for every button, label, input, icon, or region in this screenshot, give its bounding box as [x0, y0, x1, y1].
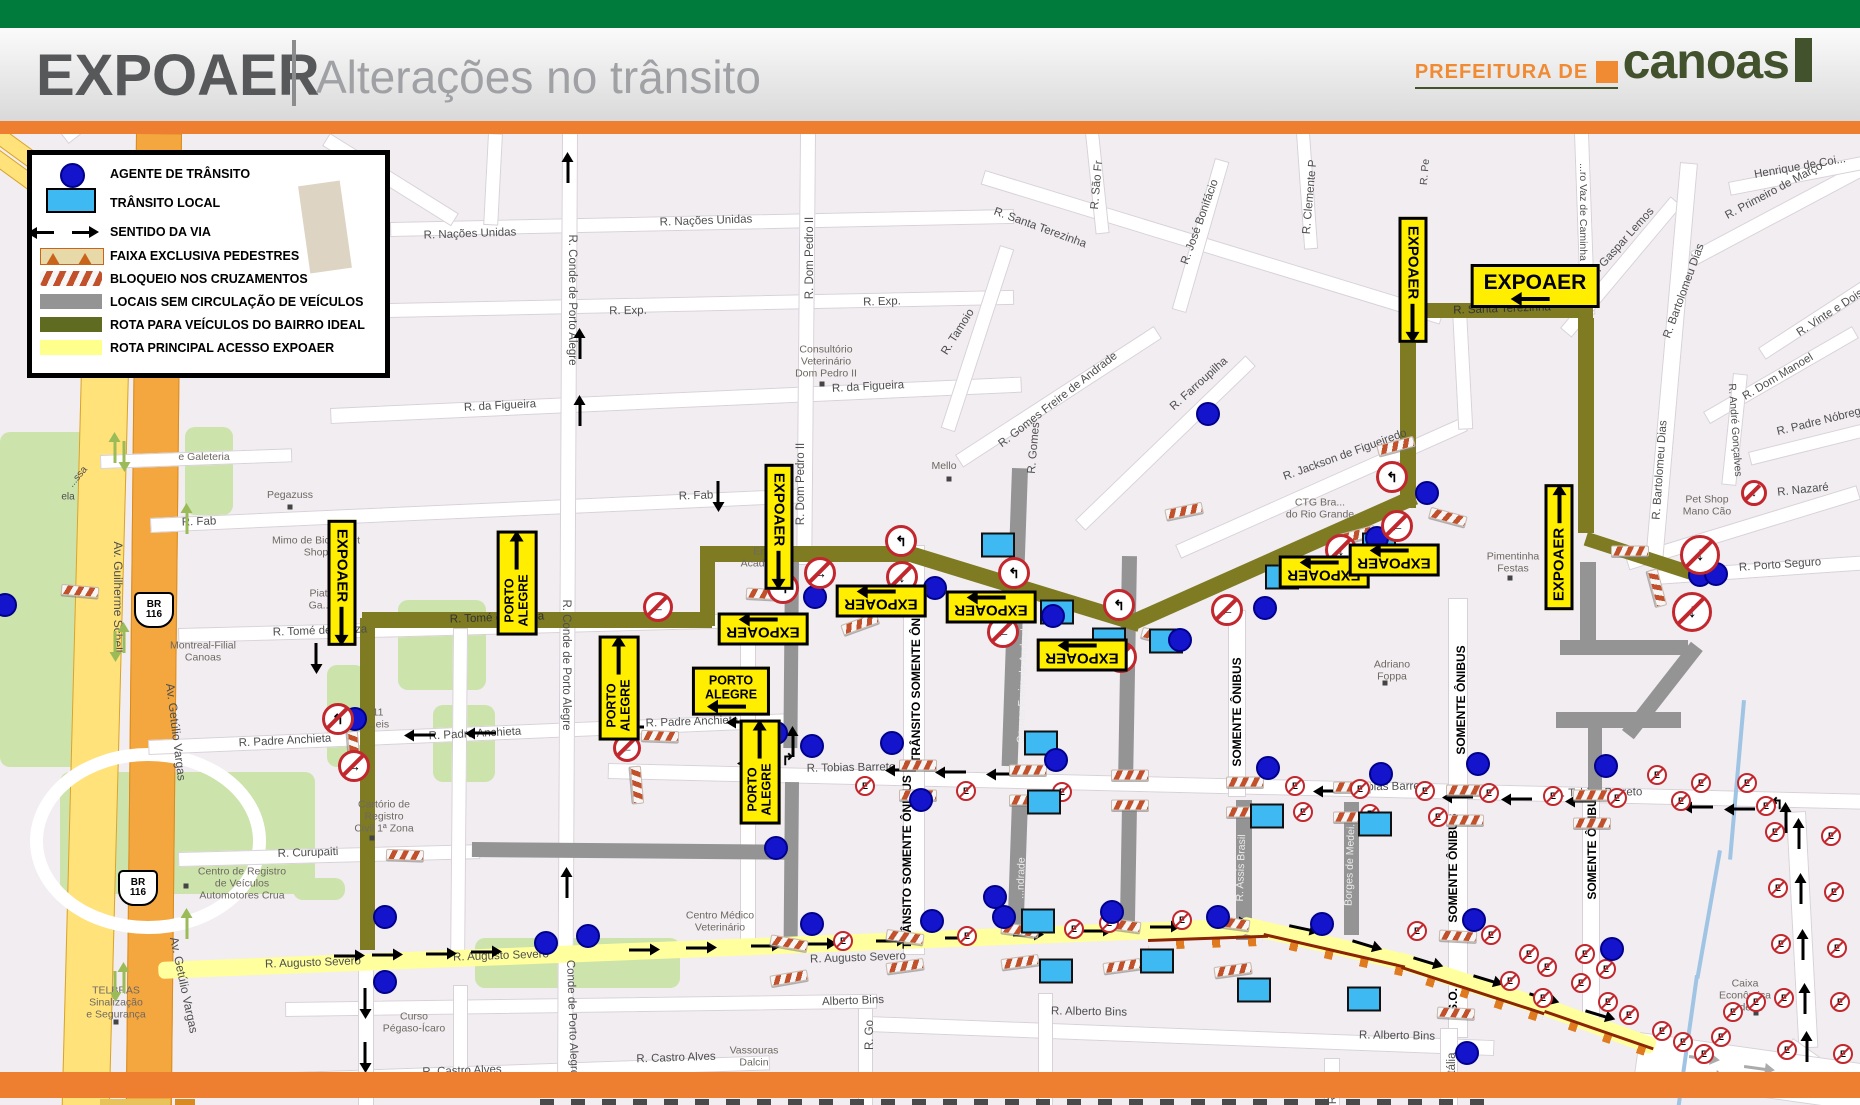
prohibition-slash [836, 934, 850, 948]
sign-arrow [866, 590, 896, 594]
prohibition-slash [1749, 995, 1763, 1009]
olive-route-icon [38, 314, 104, 336]
prohibition-slash [1288, 779, 1302, 793]
prohibition-slash [1676, 596, 1706, 626]
turn-restriction-sign: ↓ [1680, 535, 1720, 575]
no-parking-sign: E [1415, 781, 1435, 801]
traffic-agent-dot [909, 788, 933, 812]
legend-row-locais: LOCAIS SEM CIRCULAÇÃO DE VEÍCULOS [32, 291, 385, 315]
traffic-agent-dot [1253, 596, 1277, 620]
traffic-agent-dot [1041, 604, 1065, 628]
street [1452, 309, 1473, 430]
crossing-blockade [1009, 765, 1047, 776]
local-traffic-marker [1039, 959, 1073, 984]
no-parking-sign: E [1533, 988, 1553, 1008]
traffic-agent-dot [1600, 937, 1624, 961]
poi-marker [820, 382, 825, 387]
local-traffic-marker [1358, 812, 1392, 837]
expoaer-sign-text: EXPOAER [334, 529, 351, 602]
prohibition-slash [1676, 1035, 1690, 1049]
direction-arrow [315, 643, 318, 665]
no-parking-sign: E [1607, 788, 1627, 808]
expoaer-sign: EXPOAER [1399, 217, 1428, 343]
traffic-agent-dot [1462, 908, 1486, 932]
turn-restriction-sign: ↰ [322, 703, 354, 735]
direction-arrow [474, 732, 496, 735]
legend-label: ROTA PRINCIPAL ACESSO EXPOAER [110, 341, 334, 355]
prohibition-slash [1578, 947, 1592, 961]
sign-arrow [617, 644, 621, 674]
traffic-agent-dot [1455, 1041, 1479, 1065]
no-parking-sign: E [1756, 796, 1776, 816]
expoaer-sign-text: EXPOAER [954, 602, 1027, 619]
crossing-blockade [1111, 800, 1149, 811]
prohibition-slash [1759, 799, 1773, 813]
porto-alegre-sign: PORTO ALEGRE [692, 667, 770, 716]
no-parking-sign: E [1827, 938, 1847, 958]
traffic-agent-dot [1466, 752, 1490, 776]
prohibition-slash [1522, 947, 1536, 961]
no-parking-sign: E [1821, 826, 1841, 846]
page-subtitle: Alterações no trânsito [316, 50, 761, 104]
no-parking-sign: E [1619, 1005, 1639, 1025]
crossing-blockade [1000, 954, 1039, 970]
logo-green-square [1795, 38, 1812, 82]
street-label: R. Conde de Porto Alegre [560, 599, 572, 730]
top-green-bar [0, 0, 1860, 28]
traffic-agent-dot [983, 885, 1007, 909]
sign-arrow [748, 618, 778, 622]
no-parking-sign: E [1519, 944, 1539, 964]
turn-restriction-sign: ← [1211, 594, 1243, 626]
crossing-blockade [769, 969, 808, 986]
porto-alegre-sign: PORTO ALEGRE [740, 719, 781, 824]
no-parking-sign: E [1647, 765, 1667, 785]
prohibition-slash [1410, 924, 1424, 938]
turn-restriction-sign: ↰ [885, 525, 917, 557]
direction-arrow [1806, 1040, 1809, 1062]
park-area [293, 878, 345, 900]
blockade-icon [38, 268, 104, 290]
prohibition-slash [1353, 782, 1367, 796]
turn-restriction-sign: ↓ [1741, 480, 1767, 506]
traffic-agent-dot [1310, 912, 1334, 936]
logo-text-bottom: canoas [1623, 40, 1789, 83]
traffic-agent-dot [1044, 748, 1068, 772]
footer-orange-bar [0, 1072, 1860, 1098]
poi-marker [114, 1020, 119, 1025]
prohibition-slash [646, 596, 668, 618]
orange-divider-bar [0, 121, 1860, 134]
direction-arrow [579, 337, 582, 359]
direction-arrow [579, 404, 582, 426]
prohibition-slash [1697, 1047, 1711, 1061]
traffic-agent-dot [880, 731, 904, 755]
no-parking-sign: E [1652, 1021, 1672, 1041]
expoaer-sign: EXPOAER [717, 613, 808, 646]
gray-route-icon [38, 291, 104, 313]
sign-arrow [758, 728, 762, 758]
prohibition-slash [1674, 794, 1688, 808]
legend-row-rota-expoaer: ROTA PRINCIPAL ACESSO EXPOAER [32, 337, 385, 361]
no-parking-sign: E [956, 781, 976, 801]
park-area [185, 427, 233, 515]
street [330, 377, 1022, 424]
sign-arrow [716, 704, 746, 708]
direction-arrow [1082, 930, 1104, 933]
direction-arrow [944, 771, 966, 774]
prohibition-slash [1774, 937, 1788, 951]
roundabout-road [30, 748, 266, 934]
no-parking-sign: E [1694, 1044, 1714, 1064]
local-traffic-marker [1027, 790, 1061, 815]
expoaer-sign: EXPOAER [1036, 639, 1127, 672]
traffic-agent-dot [534, 931, 558, 955]
sign-arrow [1379, 549, 1409, 553]
no-parking-sign: E [1575, 944, 1595, 964]
expoaer-sign: EXPOAER [945, 591, 1036, 624]
traffic-agent-dot [1369, 762, 1393, 786]
sign-arrow [1557, 493, 1561, 523]
no-parking-sign: E [1571, 973, 1591, 993]
prohibition-slash [1743, 484, 1762, 503]
sign-arrow [1411, 304, 1415, 334]
prohibition-slash [1777, 991, 1791, 1005]
direction-arrow [114, 971, 117, 993]
prohibition-slash [1827, 885, 1841, 899]
sign-arrow [1309, 561, 1339, 565]
expoaer-sign: EXPOAER [1545, 484, 1574, 610]
sign-arrow [515, 539, 519, 569]
no-parking-sign: E [1768, 878, 1788, 898]
crossing-blockade [1428, 507, 1468, 527]
street-label: ...ro Vaz de Caminha [1577, 163, 1589, 261]
prohibition-slash [1418, 784, 1432, 798]
turn-restriction-sign: ↓ [1672, 592, 1712, 632]
prohibition-slash [1740, 776, 1754, 790]
prohibition-slash [341, 754, 364, 777]
bottom-map-fragment [175, 1099, 195, 1105]
street-label: ela [61, 492, 74, 503]
no-parking-sign: E [1833, 1044, 1853, 1064]
prohibition-slash [1830, 941, 1844, 955]
traffic-agent-dot [1168, 628, 1192, 652]
direction-arrow [372, 954, 394, 957]
prohibition-slash [1694, 776, 1708, 790]
direction-arrow [364, 1042, 367, 1064]
local-traffic-marker [1021, 909, 1055, 934]
turn-restriction-sign: ↰ [1103, 589, 1135, 621]
local-traffic-icon [38, 188, 104, 210]
no-parking-sign: E [1824, 882, 1844, 902]
poi-label: Cartório de Registro Civil 1ª Zona [354, 799, 413, 834]
expoaer-sign: EXPOAER [328, 520, 357, 646]
no-parking-sign: E [1537, 957, 1557, 977]
direction-arrow [413, 734, 435, 737]
poi-label: Pegazuss [267, 490, 313, 502]
porto-alegre-sign-text: PORTO ALEGRE [746, 763, 775, 815]
direction-arrow [566, 876, 569, 898]
logo-line2: canoas [1623, 38, 1812, 82]
direction-arrow [1800, 882, 1803, 904]
prohibition-slash [807, 561, 830, 584]
direction-arrow [114, 631, 117, 653]
crossing-blockade [1164, 502, 1203, 521]
poi-label: Adriano Foppa [1374, 659, 1410, 683]
poi-label: Montreal-Filial Canoas [170, 640, 236, 664]
expoaer-sign-text: EXPOAER [1551, 528, 1568, 601]
traffic-agent-dot [1100, 900, 1124, 924]
no-parking-sign: E [1064, 919, 1084, 939]
bottom-cropped-text-strip [540, 1099, 1500, 1105]
street-label: SOMENTE ÔNIBUS [1446, 813, 1460, 922]
sign-arrow [1520, 297, 1550, 301]
poi-label: Mello [931, 461, 956, 473]
crossing-blockade [1226, 777, 1264, 788]
prohibition-slash [1503, 974, 1517, 988]
badge-line2: 116 [146, 610, 162, 620]
badge-line2: 116 [130, 888, 146, 898]
expoaer-sign-text: EXPOAER [1484, 271, 1587, 295]
no-parking-sign: E [1691, 773, 1711, 793]
poi-label: Pet Shop Mano Cão [1683, 494, 1731, 518]
street [450, 628, 468, 955]
direction-arrow [186, 917, 189, 939]
direction-arrow [806, 943, 828, 946]
poi-label: Centro de Registro de Veículos Automotor… [198, 866, 286, 901]
poi-label: Pimentinha Festas [1487, 551, 1540, 575]
bottom-map-fragment [100, 1099, 170, 1105]
direction-arrow [1802, 938, 1805, 960]
prohibition-slash [1431, 810, 1445, 824]
agent-dot-icon [38, 163, 104, 185]
traffic-agent-dot [576, 924, 600, 948]
street [483, 133, 503, 226]
turn-restriction-sign: → [338, 750, 370, 782]
no-parking-sign: E [1407, 921, 1427, 941]
no-parking-sign: E [1771, 934, 1791, 954]
no-parking-sign: E [1481, 925, 1501, 945]
blocked-street [1556, 712, 1681, 728]
street-label: R. Go [864, 1020, 876, 1050]
traffic-agent-dot [373, 905, 397, 929]
crossing-blockade [1446, 815, 1484, 826]
prohibition-slash [1610, 791, 1624, 805]
poi-marker [947, 477, 952, 482]
direction-arrow [123, 631, 126, 653]
poi-marker [288, 505, 293, 510]
expoaer-sign-text: EXPOAER [844, 596, 917, 613]
legend-label: AGENTE DE TRÂNSITO [110, 167, 250, 181]
traffic-agent-dot [920, 909, 944, 933]
no-parking-sign: E [1500, 971, 1520, 991]
no-parking-sign: E [1711, 1027, 1731, 1047]
header: EXPOAER Alterações no trânsito PREFEITUR… [0, 28, 1860, 121]
traffic-agent-dot [1256, 756, 1280, 780]
porto-alegre-sign: PORTO ALEGRE [599, 635, 640, 740]
street-label: R. Alberto Bins [1359, 1029, 1435, 1042]
blocked-street [472, 842, 787, 860]
prohibition-slash [1768, 825, 1782, 839]
crossing-blockade [1573, 790, 1611, 801]
local-traffic-marker [1250, 804, 1284, 829]
expoaer-sign-text: EXPOAER [1357, 555, 1430, 572]
prohibition-slash [959, 784, 973, 798]
no-parking-sign: E [1350, 779, 1370, 799]
bairro-ideal-route [700, 546, 910, 562]
direction-arrow [567, 161, 570, 183]
prohibition-slash [1601, 995, 1615, 1009]
no-parking-sign: E [1293, 802, 1313, 822]
poi-label: Centro Médico Veterinário [686, 910, 754, 934]
prohibition-slash [1536, 991, 1550, 1005]
no-parking-sign: E [1774, 988, 1794, 1008]
blocked-street [1560, 640, 1688, 655]
direction-arrow [364, 988, 367, 1010]
prohibition-slash [1622, 1008, 1636, 1022]
direction-arrow [1804, 992, 1807, 1014]
stream [1695, 850, 1722, 979]
porto-alegre-sign-text: PORTO ALEGRE [705, 674, 757, 703]
expoaer-sign-text: EXPOAER [726, 624, 799, 641]
prohibition-slash [1067, 922, 1081, 936]
br116-badge: BR116 [118, 870, 158, 906]
street-label: R. Exp. [863, 295, 901, 308]
prohibition-slash [1650, 768, 1664, 782]
street-label: SOMENTE ÔNIBUS [1454, 645, 1468, 754]
no-parking-sign: E [833, 931, 853, 951]
direction-arrow [123, 441, 126, 463]
local-traffic-marker [1237, 978, 1271, 1003]
poi-label: 11 ...eis [367, 707, 389, 731]
direction-arrow [1798, 827, 1801, 849]
street-label: R. Gomes Freire de Andrade [996, 350, 1119, 450]
direction-arrow [1451, 796, 1473, 799]
legend-row-bloqueio: BLOQUEIO NOS CRUZAMENTOS [32, 268, 385, 292]
legend-label: FAIXA EXCLUSIVA PEDESTRES [110, 249, 299, 263]
street-label: R. Fab [679, 489, 714, 502]
prohibition-slash [615, 738, 635, 758]
br116-badge: BR116 [134, 592, 174, 628]
street-label: SOMENTE ÔNIBUS [1585, 790, 1599, 899]
prohibition-slash [325, 707, 348, 730]
street-label: R. Pe [1418, 158, 1432, 185]
logo-text-top: PREFEITURA DE [1415, 61, 1588, 84]
no-parking-sign: E [855, 776, 875, 796]
prohibition-slash [1574, 976, 1588, 990]
direction-arrow [1785, 811, 1788, 833]
street [388, 290, 1014, 318]
street-label: R. Alberto Bins [1051, 1005, 1127, 1018]
local-traffic-marker [1140, 949, 1174, 974]
traffic-agent-dot [373, 970, 397, 994]
prohibition-slash [960, 929, 974, 943]
poi-label: Consultório Veterinário Dom Pedro II [795, 344, 857, 379]
legend-label: BLOQUEIO NOS CRUZAMENTOS [110, 272, 308, 286]
no-parking-sign: E [1765, 822, 1785, 842]
direction-arrow [1691, 806, 1713, 809]
traffic-agent-dot [800, 734, 824, 758]
direction-arrow [426, 953, 448, 956]
crossing-blockade [899, 760, 937, 771]
no-parking-sign: E [1285, 776, 1305, 796]
no-parking-sign: E [1596, 959, 1616, 979]
turn-restriction-sign: → [804, 557, 836, 589]
street-label: R. Tobias Barreto [807, 761, 896, 775]
local-traffic-marker [1347, 987, 1381, 1012]
prohibition-slash [1296, 805, 1310, 819]
porto-alegre-sign-text: PORTO ALEGRE [503, 574, 532, 626]
street-label: R. Curupaiti [277, 846, 338, 860]
no-parking-sign: E [1543, 786, 1563, 806]
crossing-blockade [386, 849, 424, 861]
crossing-blockade [1213, 962, 1252, 978]
direction-arrow [686, 947, 708, 950]
direction-arrow [1510, 798, 1532, 801]
bairro-ideal-route [360, 618, 375, 950]
sign-arrow [1067, 644, 1097, 648]
prohibition-slash [1655, 1024, 1669, 1038]
expoaer-sign: EXPOAER [1471, 264, 1600, 308]
legend-label: SENTIDO DA VIA [110, 225, 211, 239]
poi-label: Vassouras Dalcin [730, 1045, 779, 1069]
prohibition-slash [1546, 789, 1560, 803]
prohibition-slash [1726, 1005, 1740, 1019]
traffic-map-page: R. Nações UnidasR. Nações UnidasR. Exp.R… [0, 0, 1860, 1105]
direction-arrow [334, 955, 356, 958]
logo-line1: PREFEITURA DE [1415, 61, 1618, 89]
traffic-agent-dot [1196, 402, 1220, 426]
prohibition-slash [1824, 829, 1838, 843]
map-legend: AGENTE DE TRÂNSITO TRÂNSITO LOCAL SENTID… [27, 150, 390, 378]
street-label: R. Dom Pedro II [795, 443, 807, 525]
legend-label: LOCAIS SEM CIRCULAÇÃO DE VEÍCULOS [110, 295, 364, 309]
crossing-blockade [1611, 546, 1649, 557]
blocked-street [784, 782, 799, 947]
legend-row-rota-ideal: ROTA PARA VEÍCULOS DO BAIRRO IDEAL [32, 314, 385, 338]
no-parking-sign: E [1172, 910, 1192, 930]
prohibition-slash [1836, 1047, 1850, 1061]
prohibition-slash [858, 779, 872, 793]
crossing-blockade [641, 730, 679, 742]
crossing-blockade [1102, 958, 1141, 974]
street-label: R. Nações Unidas [423, 226, 516, 241]
street-label: Alberto Bins [822, 994, 884, 1008]
street [1075, 355, 1256, 530]
poi-label: CTG Bra... do Rio Grande [1286, 497, 1354, 521]
prohibition-slash [1833, 995, 1847, 1009]
title-divider [292, 40, 296, 106]
prohibition-slash [1599, 962, 1613, 976]
no-parking-sign: E [1428, 807, 1448, 827]
traffic-agent-dot [1594, 754, 1618, 778]
expoaer-sign: EXPOAER [1348, 544, 1439, 577]
yellow-route-icon [38, 337, 104, 359]
direction-arrow [1150, 926, 1172, 929]
direction-arrow [717, 481, 720, 503]
no-parking-sign: E [1723, 1002, 1743, 1022]
prohibition-slash [1482, 786, 1496, 800]
no-parking-sign: E [1671, 791, 1691, 811]
direction-arrow [123, 971, 126, 993]
traffic-agent-dot [1415, 481, 1439, 505]
prohibition-slash [1780, 1043, 1794, 1057]
poi-marker [370, 836, 375, 841]
prohibition-slash [1214, 598, 1237, 621]
logo-orange-square [1596, 61, 1618, 83]
direction-arrow [471, 951, 493, 954]
prohibition-slash [1540, 960, 1554, 974]
